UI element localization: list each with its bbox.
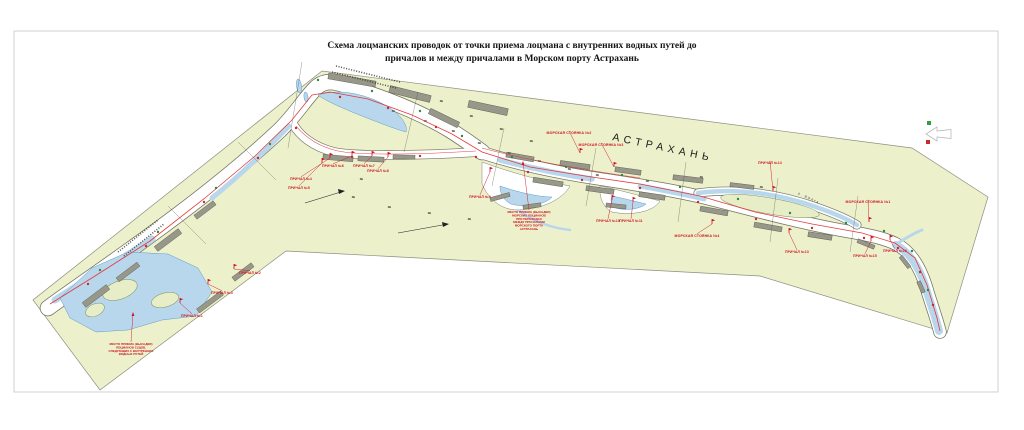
svg-text:ПРИЧАЛ №6: ПРИЧАЛ №6: [322, 164, 344, 168]
red-buoy-icon: [932, 304, 934, 306]
red-buoy-icon: [919, 271, 921, 273]
svg-text:ПРИЧАЛ №9: ПРИЧАЛ №9: [469, 195, 491, 199]
green-buoy-icon: [371, 90, 373, 92]
pier-structure: [393, 155, 415, 159]
green-buoy-icon: [789, 212, 791, 214]
green-buoy-icon: [679, 186, 681, 188]
red-buoy-swatch: [926, 140, 930, 144]
red-buoy-icon: [581, 179, 583, 181]
red-buoy-icon: [697, 201, 699, 203]
green-buoy-icon: [911, 250, 913, 252]
red-buoy-icon: [435, 126, 437, 128]
chart-page: Схема лоцманских проводок от точки прием…: [0, 0, 1024, 430]
green-buoy-icon: [845, 222, 847, 224]
red-buoy-icon: [863, 237, 865, 239]
green-buoy-icon: [511, 156, 513, 158]
red-buoy-icon: [475, 156, 477, 158]
chart-title: Схема лоцманских проводок от точки прием…: [0, 40, 1024, 66]
green-buoy-icon: [419, 110, 421, 112]
svg-text:ПРИЧАЛ №5: ПРИЧАЛ №5: [288, 186, 310, 190]
svg-text:ПРИЧАЛ №7: ПРИЧАЛ №7: [353, 164, 375, 168]
chart-legend: [926, 121, 951, 144]
direction-arrow-icon: [926, 127, 951, 141]
svg-text:ПРИЧАЛ №14: ПРИЧАЛ №14: [758, 161, 782, 165]
svg-text:ПРИЧАЛ №3: ПРИЧАЛ №3: [211, 291, 233, 295]
red-buoy-icon: [419, 155, 421, 157]
svg-text:ПРИЧАЛ №4: ПРИЧАЛ №4: [290, 177, 312, 181]
green-buoy-swatch: [927, 121, 931, 125]
red-buoy-icon: [351, 156, 353, 158]
red-buoy-icon: [87, 283, 89, 285]
green-buoy-icon: [883, 230, 885, 232]
green-buoy-icon: [927, 289, 929, 291]
red-buoy-icon: [639, 187, 641, 189]
green-buoy-icon: [565, 166, 567, 168]
red-buoy-icon: [387, 107, 389, 109]
svg-text:ПРИЧАЛ №15: ПРИЧАЛ №15: [853, 254, 877, 258]
svg-text:ПРИЧАЛ №11: ПРИЧАЛ №11: [619, 219, 643, 223]
svg-text:ПРИЧАЛ №13: ПРИЧАЛ №13: [785, 250, 809, 254]
red-buoy-icon: [339, 96, 341, 98]
chart-title-line2: причалов и между причалами в Морском пор…: [0, 53, 1024, 66]
svg-text:МОРСКАЯ СТОЯНКА №2: МОРСКАЯ СТОЯНКА №2: [547, 131, 592, 135]
green-buoy-icon: [157, 231, 159, 233]
svg-text:ПРИЧАЛ №8: ПРИЧАЛ №8: [367, 169, 389, 173]
green-buoy-icon: [317, 79, 319, 81]
green-buoy-icon: [621, 174, 623, 176]
chart-title-line1: Схема лоцманских проводок от точки прием…: [0, 40, 1024, 53]
green-buoy-icon: [737, 198, 739, 200]
svg-text:МОРСКАЯ СТОЯНКА №1: МОРСКАЯ СТОЯНКА №1: [846, 200, 891, 204]
red-buoy-icon: [257, 157, 259, 159]
green-buoy-icon: [215, 187, 217, 189]
svg-text:ПРИЧАЛ №16: ПРИЧАЛ №16: [883, 249, 907, 253]
red-buoy-icon: [755, 218, 757, 220]
svg-text:ПРИЧАЛ №1: ПРИЧАЛ №1: [181, 314, 203, 318]
red-buoy-icon: [295, 127, 297, 129]
red-buoy-icon: [527, 171, 529, 173]
red-buoy-icon: [145, 245, 147, 247]
red-buoy-icon: [897, 247, 899, 249]
green-buoy-icon: [269, 143, 271, 145]
red-buoy-icon: [811, 227, 813, 229]
svg-text:ПРИЧАЛ №10: ПРИЧАЛ №10: [596, 219, 620, 223]
green-buoy-icon: [461, 135, 463, 137]
red-buoy-icon: [203, 201, 205, 203]
green-buoy-icon: [99, 269, 101, 271]
svg-text:ПРИЧАЛ №2: ПРИЧАЛ №2: [239, 271, 261, 275]
svg-text:МОРСКАЯ СТОЯНКА №4: МОРСКАЯ СТОЯНКА №4: [675, 234, 720, 238]
